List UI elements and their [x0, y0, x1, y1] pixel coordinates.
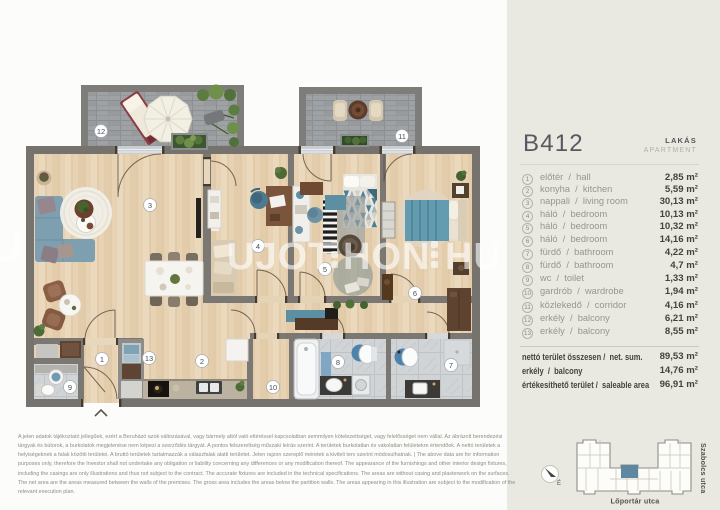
- svg-text:2: 2: [200, 357, 204, 366]
- svg-text:13: 13: [145, 354, 153, 363]
- svg-text:Lőportár utca: Lőportár utca: [611, 497, 661, 506]
- svg-text:É: É: [557, 480, 561, 487]
- svg-text:Szabolcs utca: Szabolcs utca: [699, 443, 708, 494]
- svg-text:7: 7: [449, 361, 453, 370]
- svg-text:8: 8: [336, 358, 340, 367]
- svg-text:9: 9: [68, 383, 72, 392]
- svg-text:6: 6: [413, 289, 417, 298]
- svg-text:3: 3: [148, 201, 152, 210]
- svg-text:10: 10: [269, 383, 277, 392]
- svg-text:12: 12: [97, 127, 105, 136]
- svg-text:11: 11: [398, 132, 406, 141]
- svg-text:1: 1: [100, 355, 104, 364]
